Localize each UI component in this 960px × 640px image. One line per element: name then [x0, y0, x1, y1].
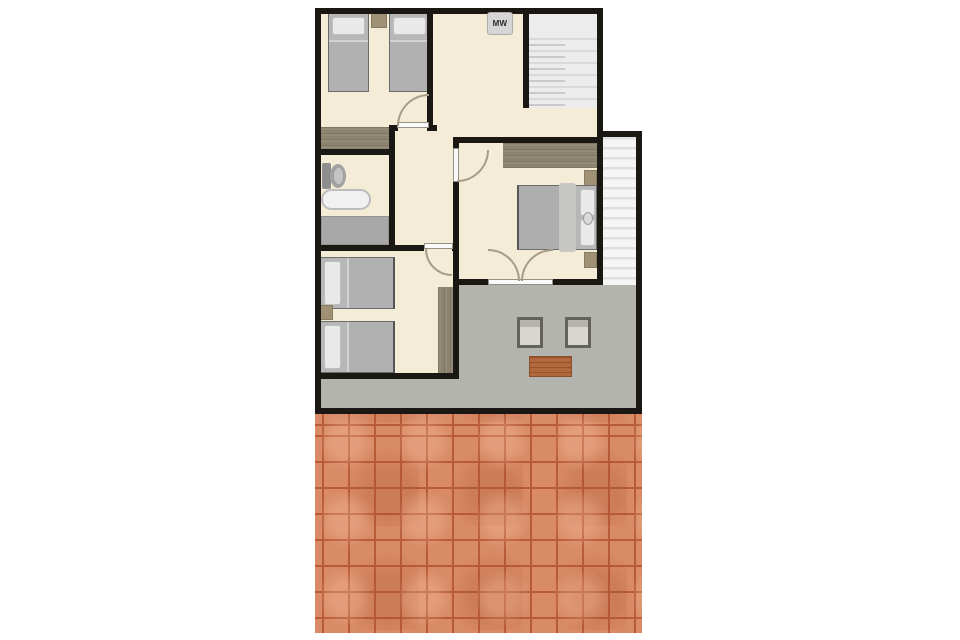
microwave-label: MW	[487, 12, 513, 35]
bedroom2-wall-top	[453, 137, 603, 143]
terrace-chair-2	[565, 317, 591, 348]
exterior-wall-top	[315, 8, 603, 14]
single-bed-1	[328, 12, 369, 92]
external-staircase	[603, 137, 636, 285]
cushion	[583, 212, 593, 225]
double-bed	[517, 185, 597, 250]
terrace-strip	[321, 379, 459, 408]
wardrobe	[503, 143, 597, 168]
nightstand	[371, 12, 387, 28]
floor-plan-canvas: MW	[0, 0, 960, 640]
terrace	[459, 285, 636, 408]
bathroom-wall	[389, 125, 395, 251]
bed-throw	[559, 183, 576, 252]
microwave-text: MW	[493, 19, 508, 28]
pillow	[332, 17, 365, 35]
nightstand	[584, 170, 597, 186]
bathroom-wall-top	[315, 149, 395, 155]
nightstand	[584, 252, 597, 268]
nightstand	[320, 305, 333, 320]
exterior-wall-left	[315, 8, 321, 414]
bathtub-icon	[321, 189, 371, 210]
blanket	[347, 258, 393, 308]
pillow	[324, 261, 341, 305]
pillow	[393, 17, 426, 35]
toilet-seat	[334, 168, 343, 184]
wardrobe	[438, 287, 453, 373]
blanket	[347, 322, 393, 372]
wardrobe	[321, 127, 389, 149]
shower-tray	[321, 216, 389, 245]
single-bed-2	[389, 12, 430, 92]
single-bed-4	[320, 321, 395, 373]
hall-wall-stub	[315, 245, 424, 251]
staircase-steps-inner	[529, 44, 565, 108]
exterior-wall-right-lower	[636, 131, 642, 414]
exterior-wall-right-upper	[597, 8, 603, 285]
chair-back	[568, 320, 588, 327]
stairs-wall	[523, 8, 529, 108]
bedroom3-wall	[453, 285, 459, 379]
tiled-patio	[315, 414, 642, 633]
terrace-wall-stub	[553, 279, 603, 285]
bedroom3-wall-bottom	[315, 373, 459, 379]
blanket	[390, 40, 429, 91]
blanket	[329, 40, 368, 91]
chair-back	[520, 320, 540, 327]
bedroom2-wall	[453, 182, 459, 285]
coffee-table	[529, 356, 572, 377]
pillow	[324, 325, 341, 369]
terrace-chair-1	[517, 317, 543, 348]
single-bed-3	[320, 257, 395, 309]
